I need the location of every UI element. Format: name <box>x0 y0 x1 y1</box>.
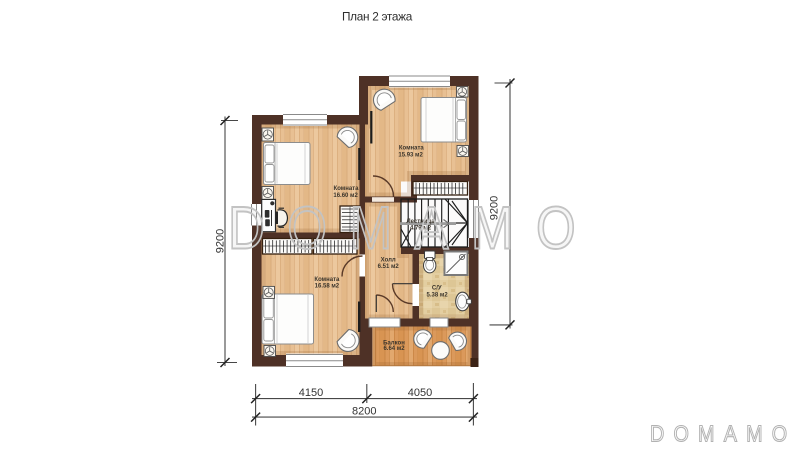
svg-text:4150: 4150 <box>299 387 323 399</box>
svg-text:DOMAMO: DOMAMO <box>228 195 598 262</box>
svg-text:6.51 м2: 6.51 м2 <box>378 264 400 270</box>
svg-text:Комната: Комната <box>399 146 425 152</box>
svg-text:9200: 9200 <box>215 229 227 253</box>
svg-text:Комната: Комната <box>314 277 340 283</box>
svg-text:6.64 м2: 6.64 м2 <box>383 346 405 352</box>
svg-text:С/У: С/У <box>432 286 442 292</box>
svg-text:8200: 8200 <box>352 406 376 418</box>
svg-text:DOMAMO: DOMAMO <box>650 420 796 447</box>
svg-text:План 2 этажа: План 2 этажа <box>342 10 413 24</box>
svg-text:4050: 4050 <box>408 387 432 399</box>
svg-text:5.38 м2: 5.38 м2 <box>427 292 449 298</box>
svg-text:Комната: Комната <box>334 186 360 192</box>
svg-text:15.93 м2: 15.93 м2 <box>398 153 423 159</box>
svg-text:16.58 м2: 16.58 м2 <box>315 284 340 290</box>
